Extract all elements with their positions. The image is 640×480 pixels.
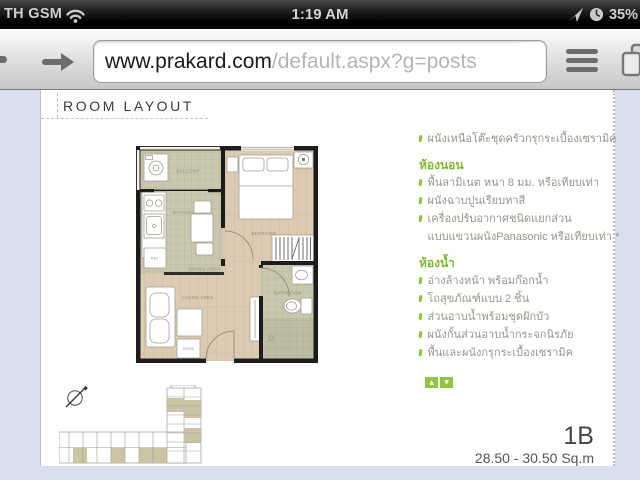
kitchen-label: KITCHEN <box>173 210 195 215</box>
status-bar: TH GSM 1:19 AM 35% <box>0 0 640 29</box>
living-label: LIVING AREA <box>182 295 213 300</box>
bullet-tick-icon <box>419 331 422 338</box>
dining-label: DINING AREA <box>188 267 220 272</box>
nightstand-lamp <box>294 152 313 168</box>
bullet-tick-icon <box>419 349 422 356</box>
spec-item: อ่างล้างหน้า พร้อมก๊อกน้ำ <box>419 272 624 290</box>
browser-toolbar: www.prakard.com/default.aspx?g=posts <box>0 29 640 90</box>
location-arrow-icon <box>568 7 584 23</box>
status-right-cluster: 35% <box>568 0 638 29</box>
tabs-button[interactable] <box>621 43 640 77</box>
spec-scroll-arrows: ▲ ▼ <box>425 377 453 388</box>
address-bar[interactable]: www.prakard.com/default.aspx?g=posts <box>93 40 547 83</box>
scroll-up-button[interactable]: ▲ <box>425 377 438 388</box>
spec-item: ผนังกั้นส่วนอาบน้ำกระจกนิรภัย <box>419 326 624 344</box>
unit-info: 1B 28.50 - 30.50 Sq.m <box>475 423 594 466</box>
spec-section-title: ห้องน้ำ <box>419 254 624 272</box>
spec-item: พื้นลามิเนต หนา 8 มม. หรือเทียบเท่า <box>419 174 624 192</box>
washing-machine <box>144 154 168 181</box>
content-panel: ROOM LAYOUT <box>40 90 615 466</box>
floor-plan-image: BALCONY KITCHEN DINING AREA BEDROOM LIVI… <box>136 146 318 363</box>
spec-item: เครื่องปรับอากาศชนิดแยกส่วน <box>419 210 624 228</box>
bullet-tick-icon <box>419 215 422 222</box>
bathroom-sink <box>292 266 313 284</box>
unit-name: 1B <box>475 423 594 449</box>
clock-time: 1:19 AM <box>0 0 640 29</box>
unit-area: 28.50 - 30.50 Sq.m <box>475 450 594 466</box>
bullet-tick-icon <box>419 277 422 284</box>
web-page: ROOM LAYOUT <box>0 90 640 480</box>
alarm-clock-icon <box>589 7 604 22</box>
heading-dashed-vline <box>57 93 58 118</box>
bullet-tick-icon <box>419 135 422 142</box>
spec-item: ส่วนอาบน้ำพร้อมชุดฝักบัว <box>419 308 624 326</box>
back-button[interactable] <box>0 56 7 63</box>
url-fade-overlay <box>509 42 545 81</box>
bullet-tick-icon <box>419 179 422 186</box>
sliding-door-panel <box>250 297 260 341</box>
spec-item: แบบแขวนผนังPanasonic หรือเทียบเท่า * <box>419 228 624 246</box>
ref-label: REF <box>151 257 159 261</box>
spec-item: ผนังเหนือโต๊ะชุดครัวกรุกระเบื้องเซรามิค <box>419 130 624 148</box>
url-text: www.prakard.com/default.aspx?g=posts <box>105 41 544 82</box>
compass-icon <box>66 386 88 407</box>
scroll-down-button[interactable]: ▼ <box>440 377 453 388</box>
heading-dashed-underline <box>41 118 208 119</box>
shower-area <box>263 318 314 359</box>
spec-item: ผนังฉาบปูนเรียบทาสี <box>419 192 624 210</box>
bullet-tick-icon <box>419 197 422 204</box>
bullet-tick-icon <box>419 313 422 320</box>
coffee-table <box>177 309 202 336</box>
spec-item: พื้นและผนังกรุกระเบื้องเซรามิค <box>419 344 624 362</box>
wardrobe <box>272 235 314 262</box>
battery-percent: 35% <box>609 7 638 23</box>
url-path: /default.aspx?g=posts <box>272 50 477 73</box>
spec-list: ผนังเหนือโต๊ะชุดครัวกรุกระเบื้องเซรามิคห… <box>419 130 624 362</box>
spec-item: โถสุขภัณฑ์แบบ 2 ชิ้น <box>419 290 624 308</box>
iphone-safari-screenshot: { "status_bar": { "carrier": "TH GSM", "… <box>0 0 640 480</box>
balcony-label: BALCONY <box>176 169 199 174</box>
bathroom-label: BATHROOM <box>274 291 302 296</box>
spec-section-title: ห้องนอน <box>419 156 624 174</box>
forward-button[interactable] <box>42 52 74 72</box>
menu-button[interactable] <box>566 49 598 76</box>
bedroom-label: BEDROOM <box>251 231 276 236</box>
building-plan <box>59 385 209 465</box>
shoe-label: SHOE <box>183 347 195 351</box>
toilet <box>284 298 312 314</box>
url-host: www.prakard.com <box>105 50 272 73</box>
bullet-tick-icon <box>419 295 422 302</box>
bedroom-window <box>241 146 294 151</box>
sofa <box>146 287 175 347</box>
page-title: ROOM LAYOUT <box>63 98 194 114</box>
